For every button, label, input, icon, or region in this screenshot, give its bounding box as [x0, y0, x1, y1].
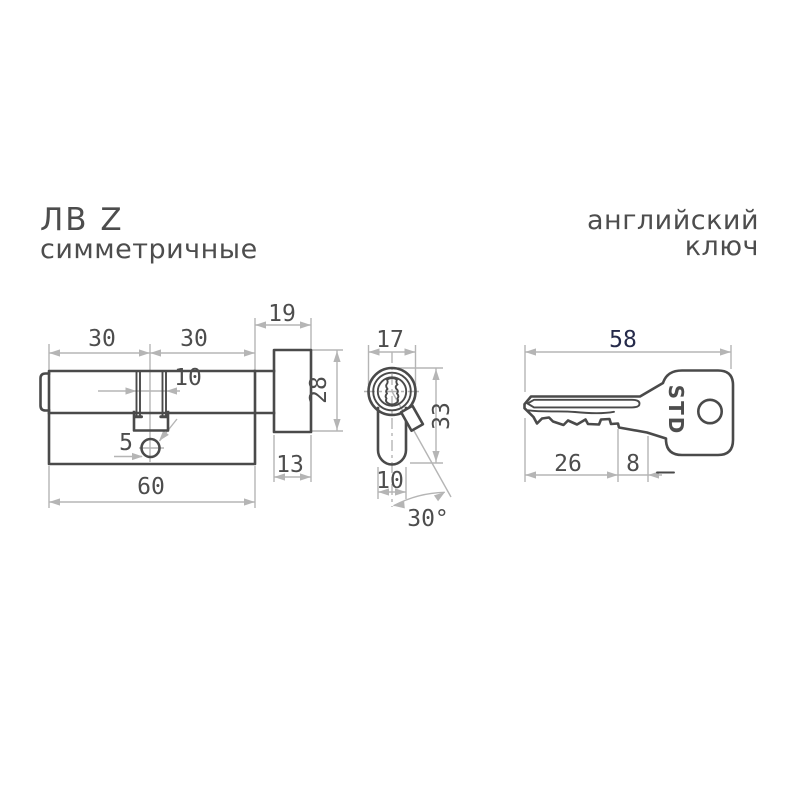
dim-shoulder: 8 — [626, 451, 640, 477]
dim-blade-length: 26 — [554, 451, 582, 477]
dim-body-width: 10 — [376, 468, 404, 494]
dim-cylinder-diameter: 17 — [376, 327, 404, 353]
key-brand-stamp: STD — [664, 385, 688, 436]
cam-slot — [135, 372, 167, 417]
dim-front-left-half: 30 — [88, 326, 116, 352]
section-view — [369, 368, 423, 465]
dim-knob-depth: 13 — [276, 452, 304, 478]
technical-drawing: ЛВ Z симметричные английский ключ — [0, 0, 800, 800]
key-ring-hole — [698, 400, 721, 423]
dimension-labels: 30 30 19 10 5 60 13 28 17 33 10 30° 58 2… — [88, 301, 640, 532]
dim-body-length: 60 — [137, 474, 165, 500]
key-blade-cut-line — [528, 410, 614, 413]
dim-screw-hole: 5 — [119, 430, 133, 456]
key-type-line2: ключ — [685, 231, 759, 262]
model-title: ЛВ Z — [40, 202, 124, 238]
dim-front-right-half: 30 — [180, 326, 208, 352]
dim-body-height: 33 — [429, 402, 455, 430]
cylinder-body — [49, 371, 255, 464]
cam-lobe — [401, 406, 423, 431]
key-blade-groove — [528, 400, 640, 408]
dim-cam-angle: 30° — [407, 506, 449, 532]
dim-knob-diameter: 28 — [306, 376, 332, 404]
drawing-page: ЛВ Z симметричные английский ключ — [0, 0, 800, 800]
header: ЛВ Z симметричные английский ключ — [40, 202, 759, 265]
dim-knob-total-depth: 19 — [268, 301, 296, 327]
dim-cam-slot-width: 10 — [174, 365, 202, 391]
model-subtitle: симметричные — [40, 234, 258, 265]
key-outline — [525, 371, 734, 456]
dim-key-length: 58 — [609, 327, 637, 353]
